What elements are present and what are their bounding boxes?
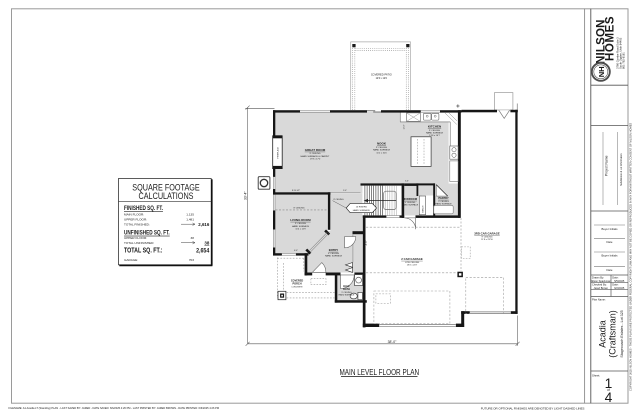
svg-text:6/2/2025: 6/2/2025 [614,286,625,290]
svg-text:HARD SURFACE: HARD SURFACE [325,255,343,258]
svg-text:FINISHED SQ. FT.: FINISHED SQ. FT. [124,206,163,213]
svg-text:703: 703 [189,258,194,262]
svg-text:HARD SURFACE: HARD SURFACE [373,149,391,152]
svg-text:8'-10 1/2": 8'-10 1/2" [292,190,300,192]
svg-text:38: 38 [204,240,209,245]
svg-text:HOMES: HOMES [605,16,617,61]
svg-text:1,135: 1,135 [186,213,194,217]
svg-text:4'-11": 4'-11" [366,240,368,245]
svg-text:TOTAL SQ. FT.:: TOTAL SQ. FT.: [124,247,162,255]
svg-text:LIVING ROOM: LIVING ROOM [290,218,311,222]
svg-text:33'-4": 33'-4" [243,191,247,200]
svg-text:MUDROOM: MUDROOM [403,197,417,201]
svg-text:NOOK: NOOK [377,142,387,146]
svg-text:11'8 x 23'10: 11'8 x 23'10 [481,239,493,241]
svg-text:11'4 x 12'9: 11'4 x 12'9 [295,229,306,231]
svg-text:13'8 x 16'7: 13'8 x 16'7 [429,135,440,137]
svg-text:UPPER FLOOR:: UPPER FLOOR: [124,217,147,221]
svg-text:Nilson Spackman: Nilson Spackman [591,279,612,283]
svg-text:801-782-8181: 801-782-8181 [622,52,626,69]
svg-text:3'-6": 3'-6" [405,181,409,183]
svg-text:LOW CEILING: LOW CEILING [405,262,420,264]
svg-text:HARD SURFACE: HARD SURFACE [353,209,371,212]
svg-text:NH: NH [597,66,606,77]
svg-text:5/5/2025: 5/5/2025 [614,279,625,283]
svg-text:12'0 x 12'0: 12'0 x 12'0 [376,77,388,80]
svg-text:HARD SURFACE: HARD SURFACE [292,225,310,228]
svg-text:(Craftsman): (Craftsman) [608,310,618,358]
svg-text:3RD CAR GARAGE: 3RD CAR GARAGE [474,231,500,235]
svg-text:HARD SURFACE: HARD SURFACE [402,204,419,207]
svg-text:GREAT ROOM: GREAT ROOM [305,148,326,152]
svg-text:HARD SURFACE: HARD SURFACE [435,203,452,206]
svg-text:Date: Date [607,240,613,244]
svg-text:HARD SURFACE: HARD SURFACE [426,132,444,135]
svg-text:1,481: 1,481 [186,217,194,221]
svg-text:CONCRETE: CONCRETE [291,286,303,288]
svg-text:Date: Date [607,268,613,272]
svg-text:Checked By:: Checked By: [592,283,607,287]
svg-text:Project Name: Project Name [605,155,609,176]
svg-text:FUTURE OR OPTIONAL FINISHES AR: FUTURE OR OPTIONAL FINISHES ARE DENOTED … [481,407,585,411]
svg-text:2 CAR GARAGE: 2 CAR GARAGE [401,257,423,261]
svg-text:38: 38 [191,236,195,240]
svg-text:TOTAL UNFINISHED:: TOTAL UNFINISHED: [124,241,154,245]
svg-text:Acadia: Acadia [598,320,608,348]
svg-text:PORCH: PORCH [292,282,301,285]
svg-text:Stagecoach Estates - Lot 325: Stagecoach Estates - Lot 325 [620,310,624,357]
svg-text:Buyer Initials: Buyer Initials [601,227,618,231]
svg-text:9' CEILING: 9' CEILING [376,147,387,149]
svg-text:PANTRY: PANTRY [438,196,449,200]
svg-text:Date:: Date: [612,283,618,287]
svg-text:FILENAME: A1 Acadia LT (Stand: FILENAME: A1 Acadia LT (Standing) PLAN -… [9,406,220,410]
svg-text:2,654: 2,654 [196,248,210,255]
svg-text:MAIN FLOOR:: MAIN FLOOR: [124,213,144,217]
svg-text:12'-0": 12'-0" [404,124,406,129]
svg-text:2,616: 2,616 [198,222,210,227]
svg-text:6'-0": 6'-0" [294,250,298,252]
svg-text:8' CEILING: 8' CEILING [294,208,305,210]
svg-text:COPYRIGHT 2025 NILSON HOMES -: COPYRIGHT 2025 NILSON HOMES - THESE PLAN… [629,123,633,391]
svg-text:9' CEILING: 9' CEILING [482,237,493,239]
svg-text:38'-0": 38'-0" [388,340,397,344]
svg-text:15 RISERS: 15 RISERS [356,206,368,208]
svg-text:TOTAL FINISHED:: TOTAL FINISHED: [124,222,150,226]
svg-text:MAIN LEVEL FLOOR PLAN: MAIN LEVEL FLOOR PLAN [339,367,419,377]
svg-text:HARD SURFACE & CARPET: HARD SURFACE & CARPET [301,155,330,158]
svg-text:9' CEILING: 9' CEILING [295,223,306,225]
svg-text:9' CEILING: 9' CEILING [310,153,321,155]
svg-text:17'8 x 17'0: 17'8 x 17'0 [310,159,321,161]
svg-text:BATH: BATH [343,288,350,291]
svg-text:FIREPLACE: FIREPLACE [277,146,280,158]
svg-text:Jared Brown: Jared Brown [594,286,609,290]
svg-text:Buyer Initials: Buyer Initials [601,254,618,258]
svg-text:KITCHEN: KITCHEN [428,125,441,129]
svg-text:11'2 x 10'0: 11'2 x 10'0 [376,152,387,154]
svg-text:4: 4 [605,390,613,405]
svg-text:ENTRY: ENTRY [329,248,339,252]
svg-text:CALCULATIONS: CALCULATIONS [138,190,193,201]
svg-text:HARD SURFACE: HARD SURFACE [339,294,355,297]
svg-text:UPPER FLOOR:: UPPER FLOOR: [124,236,147,240]
svg-text:GARAGE:: GARAGE: [124,258,138,262]
svg-text:Sheet:: Sheet: [592,374,600,378]
svg-text:19'2 x 20'7: 19'2 x 20'7 [407,265,418,267]
svg-text:9' CEILING: 9' CEILING [328,253,339,255]
svg-text:8' CEILING: 8' CEILING [333,199,343,201]
svg-text:Plan Name:: Plan Name: [592,297,606,301]
svg-text:Subdivision & Lot Information: Subdivision & Lot Information [620,153,623,186]
svg-text:5'-0": 5'-0" [343,190,347,192]
svg-text:BENCH: BENCH [423,205,425,213]
svg-text:9' CEILING: 9' CEILING [429,130,440,132]
